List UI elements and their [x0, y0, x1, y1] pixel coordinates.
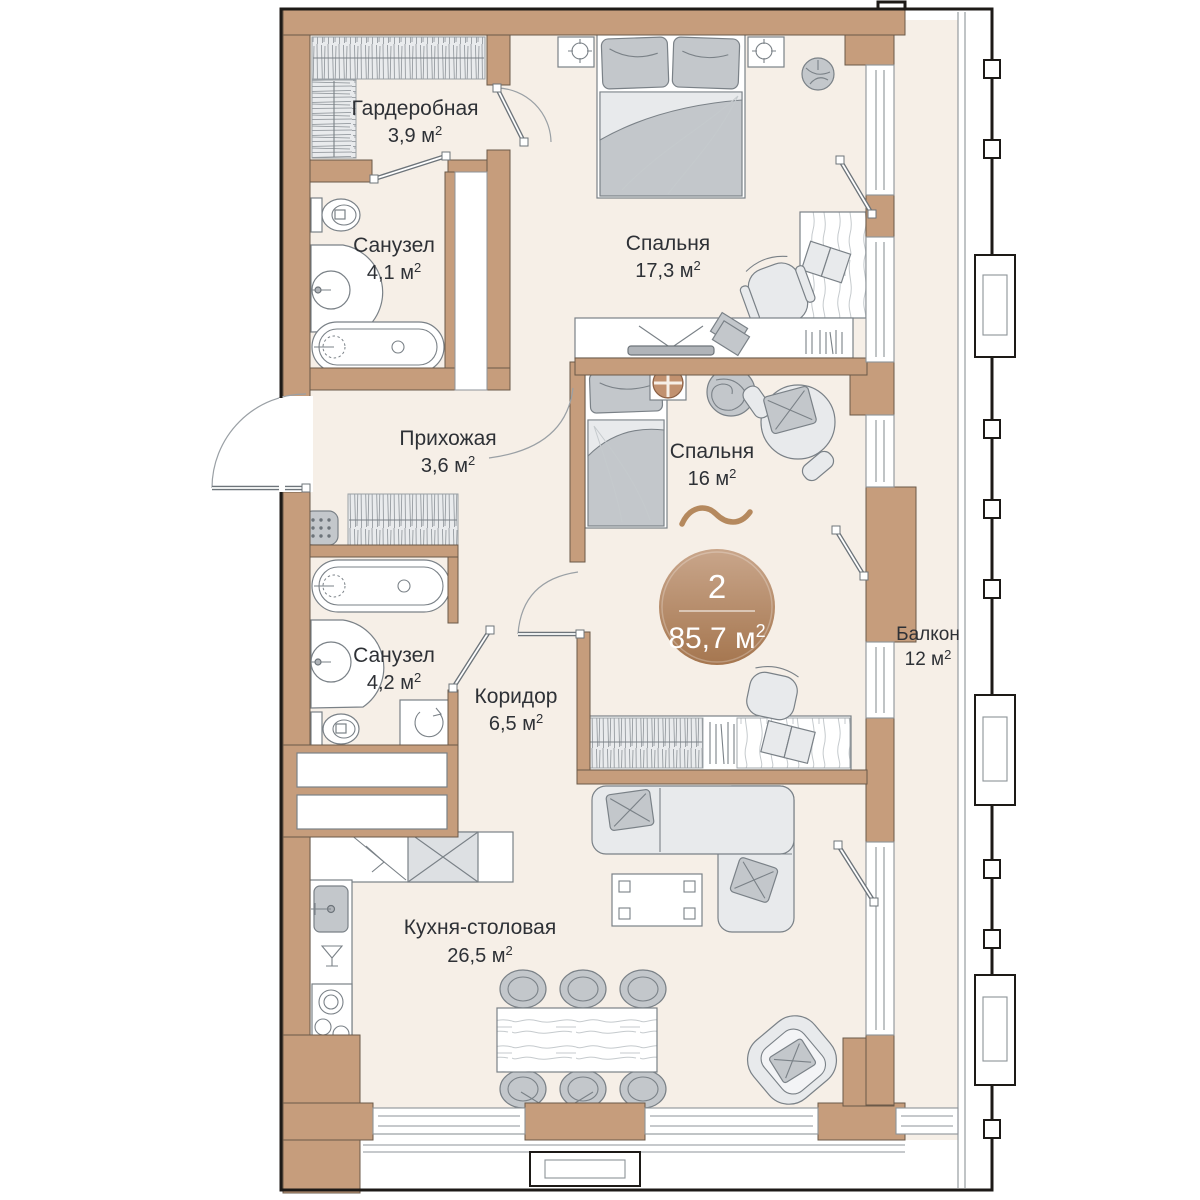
wall [283, 1103, 373, 1140]
dining-chair [560, 970, 606, 1008]
double-bed [597, 32, 745, 198]
wall [866, 487, 916, 642]
svg-text:Спальня: Спальня [670, 440, 754, 463]
toilet-icon [311, 712, 359, 746]
bathtub-icon [312, 322, 444, 372]
plant-icon [802, 58, 834, 90]
window [645, 1108, 818, 1134]
wall [448, 690, 458, 752]
window [866, 415, 894, 487]
nightstand [748, 37, 784, 67]
balcony-glazing [958, 12, 1015, 1188]
facade-box [975, 255, 1015, 357]
dining-chair [620, 1070, 666, 1108]
svg-text:Коридор: Коридор [475, 685, 558, 708]
svg-text:17,3 м2: 17,3 м2 [635, 258, 700, 282]
svg-text:Прихожая: Прихожая [399, 427, 496, 450]
area-badge: 2 85,7 м2 [659, 549, 775, 665]
bottom-facade [363, 1145, 905, 1186]
wall [487, 150, 510, 390]
badge-total-area: 85,7 м2 [668, 621, 765, 655]
dining-table [497, 1008, 657, 1072]
svg-text:26,5 м2: 26,5 м2 [447, 943, 512, 967]
toilet-icon [311, 198, 360, 232]
window [373, 1108, 525, 1134]
window [866, 842, 894, 1035]
kitchen-sink-icon [311, 886, 348, 932]
coffee-table [612, 874, 702, 926]
svg-text:Санузел: Санузел [353, 234, 435, 257]
dining-chair [500, 1070, 546, 1108]
wall [818, 1103, 905, 1140]
entrance-gap [279, 398, 285, 492]
wall [577, 770, 867, 784]
wall [448, 557, 458, 623]
dining-set [497, 970, 666, 1108]
floor-plan-page: Гардеробная 3,9 м2 Санузел 4,1 м2 Спальн… [0, 0, 1200, 1200]
svg-text:16 м2: 16 м2 [688, 466, 737, 490]
facade-box [975, 975, 1015, 1085]
svg-text:Спальня: Спальня [626, 232, 710, 255]
svg-text:4,2 м2: 4,2 м2 [367, 670, 421, 694]
fridge-icon [408, 832, 478, 882]
svg-text:4,1 м2: 4,1 м2 [367, 260, 421, 284]
wall [866, 1035, 894, 1105]
dresser [575, 313, 853, 358]
wall [283, 35, 310, 400]
window [866, 65, 894, 195]
window [866, 237, 894, 362]
wall [487, 35, 510, 85]
wall [310, 160, 372, 182]
svg-text:3,6 м2: 3,6 м2 [421, 453, 475, 477]
wall [845, 35, 894, 65]
wall [866, 718, 894, 842]
facade-box [975, 695, 1015, 805]
wardrobe-unit [583, 716, 851, 770]
svg-text:Кухня-столовая: Кухня-столовая [404, 916, 556, 939]
nightstand [558, 37, 594, 67]
dining-chair [620, 970, 666, 1008]
dining-chair [500, 970, 546, 1008]
floor-plan: Гардеробная 3,9 м2 Санузел 4,1 м2 Спальн… [0, 0, 1200, 1200]
entrance-door [212, 394, 313, 492]
svg-text:Гардеробная: Гардеробная [351, 97, 478, 120]
svg-text:Балкон: Балкон [896, 624, 960, 645]
dining-chair [560, 1070, 606, 1108]
shaft [455, 172, 487, 390]
wall [310, 545, 458, 557]
svg-text:6,5 м2: 6,5 м2 [489, 711, 543, 735]
wall [525, 1103, 645, 1140]
badge-rooms-count: 2 [708, 568, 726, 605]
svg-text:Санузел: Санузел [353, 644, 435, 667]
svg-text:3,9 м2: 3,9 м2 [388, 123, 442, 147]
wall [283, 8, 905, 35]
bathtub-icon [312, 560, 450, 612]
wall [445, 172, 455, 390]
wall [577, 632, 590, 784]
wall [575, 358, 867, 375]
storage-niches [283, 745, 458, 837]
window [866, 642, 894, 718]
window [896, 1108, 958, 1134]
